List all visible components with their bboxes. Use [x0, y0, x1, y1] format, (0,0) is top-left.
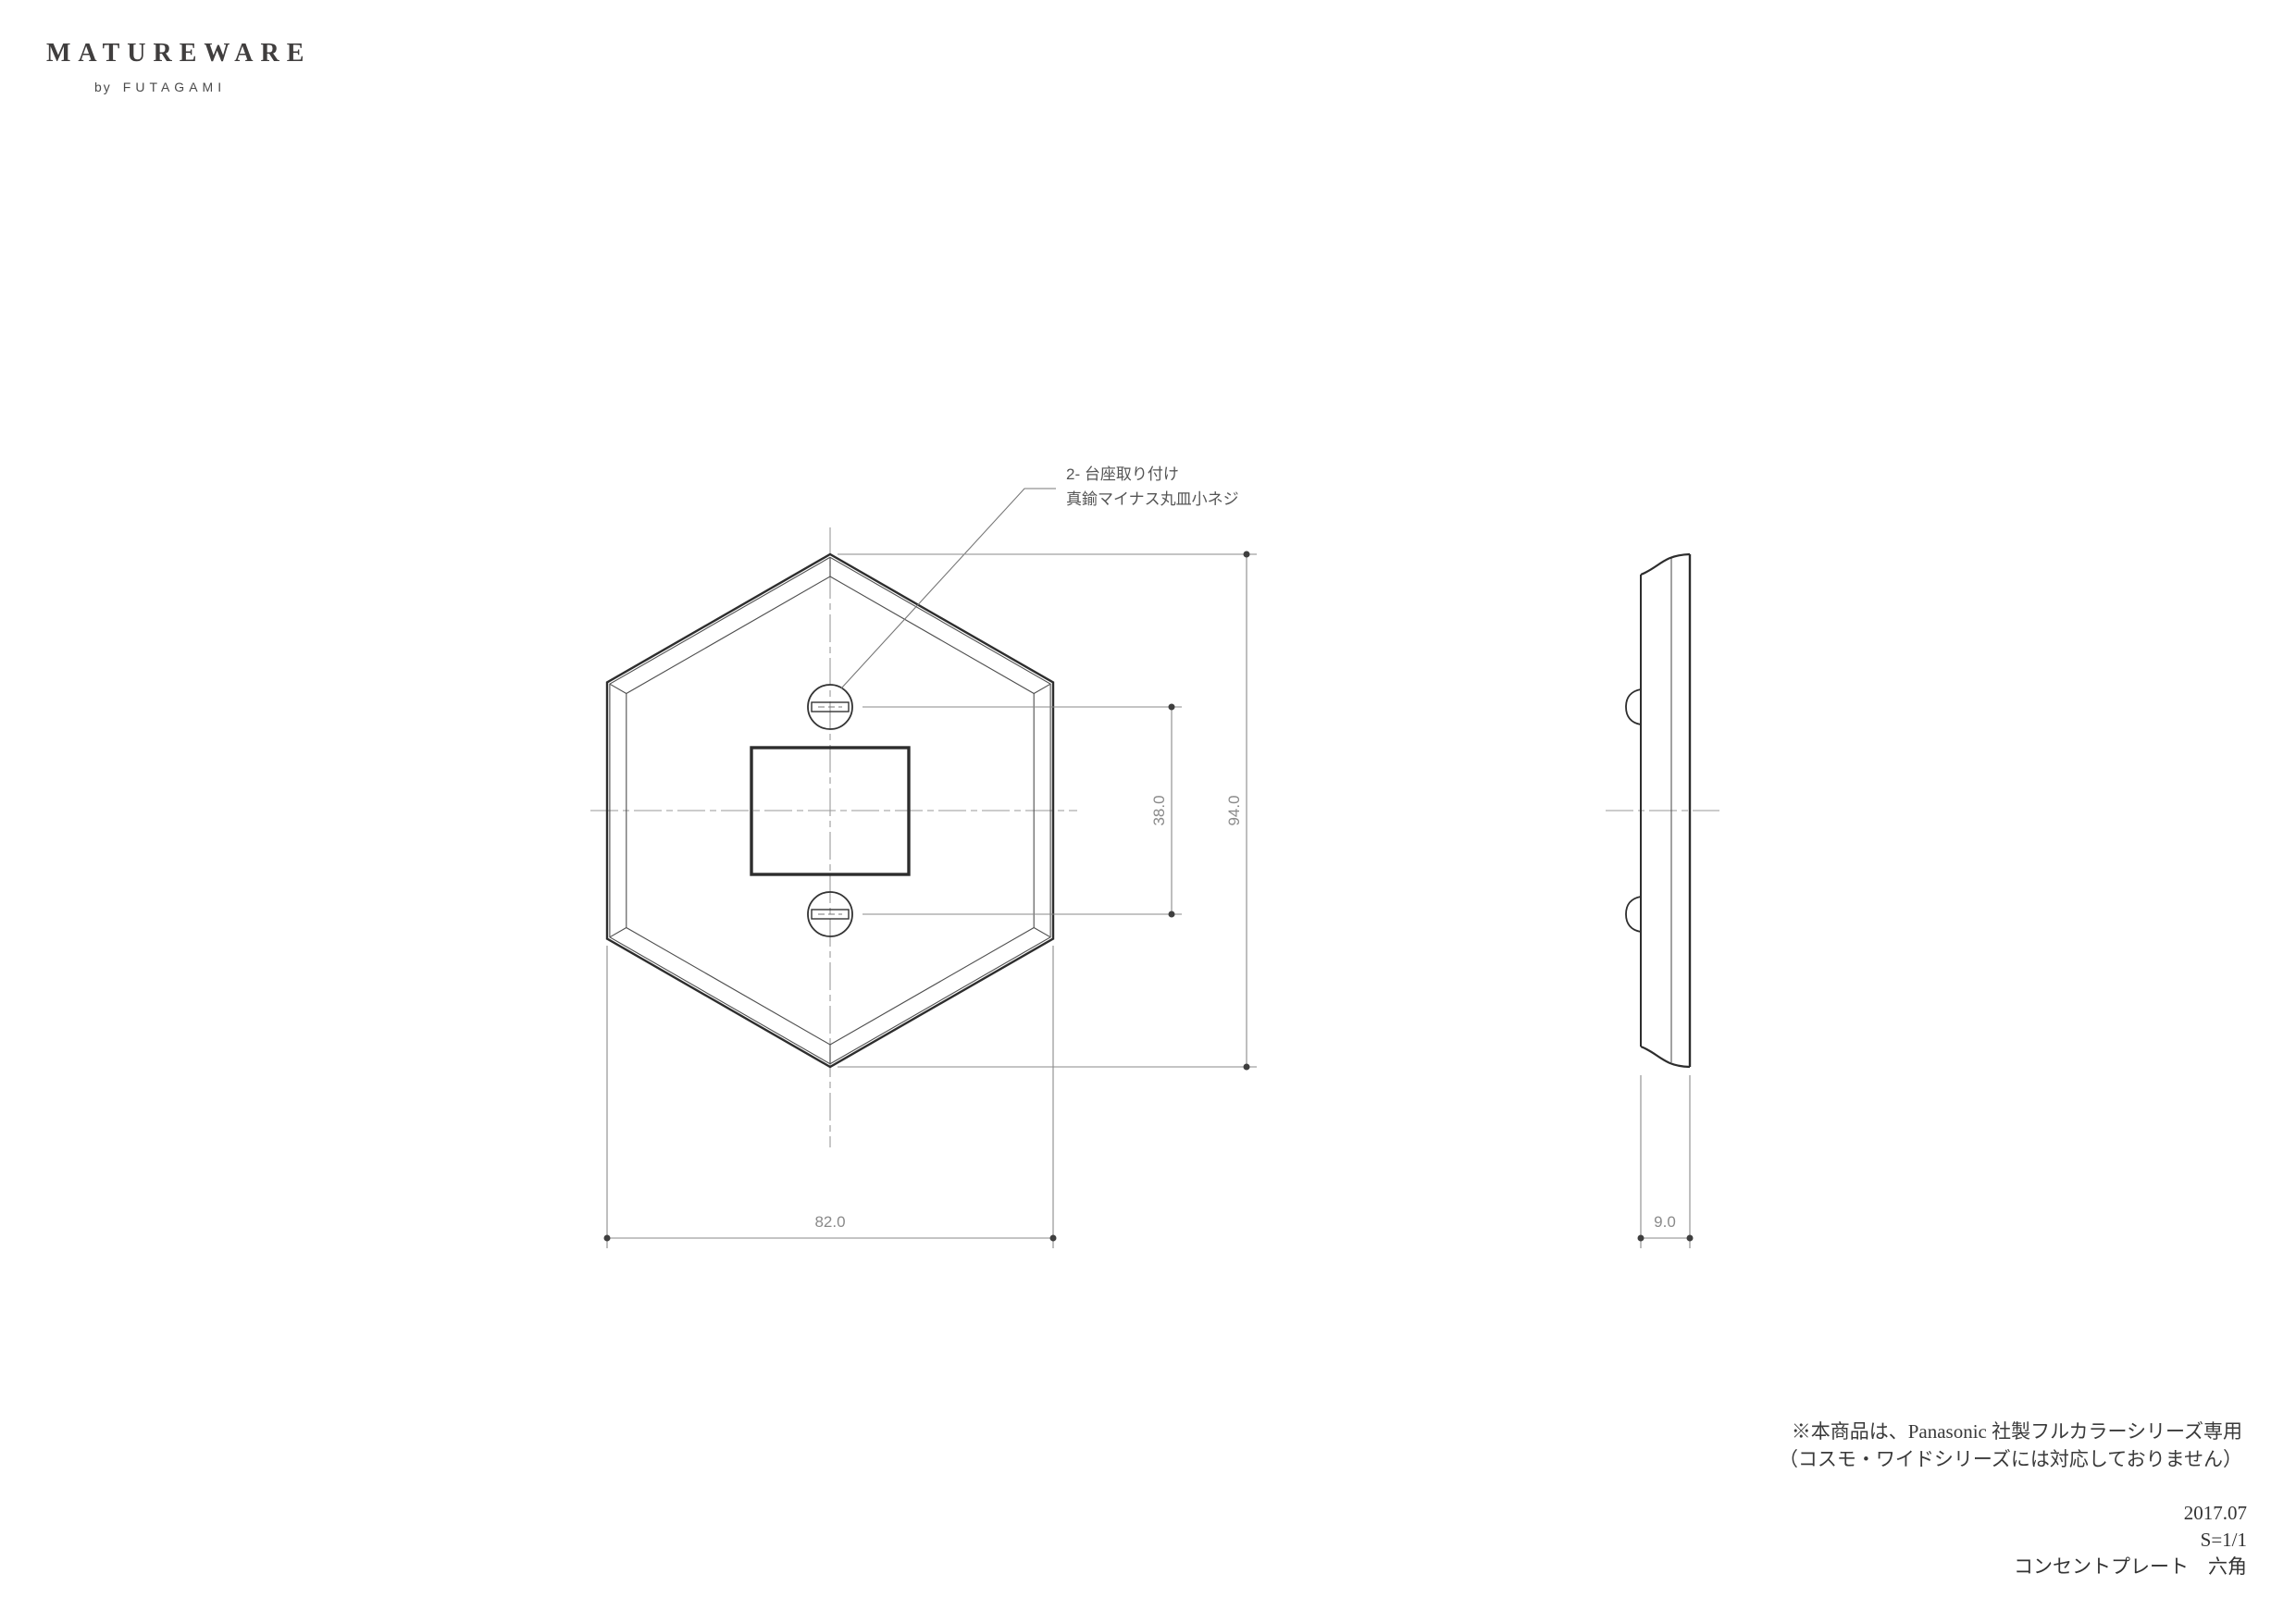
dim-label-thickness: 9.0 — [1654, 1213, 1676, 1232]
front-view-dimensions — [604, 551, 1258, 1249]
front-view — [590, 489, 1077, 1147]
screw-annotation-line1: 2- 台座取り付け — [1066, 462, 1239, 487]
drawing-scale: S=1/1 — [2014, 1527, 2247, 1554]
screw-head-profile-bottom — [1626, 897, 1641, 932]
dim-label-overall-width: 82.0 — [814, 1213, 845, 1232]
brand-by: by — [94, 80, 112, 94]
brand-subline: byFUTAGAMI — [94, 80, 311, 96]
drawing-date: 2017.07 — [2014, 1500, 2247, 1527]
brand-name: MATUREWARE — [46, 39, 311, 68]
compatibility-note: ※本商品は、Panasonic 社製フルカラーシリーズ専用 （コスモ・ワイドシリ… — [1779, 1418, 2242, 1473]
dim-label-overall-height: 94.0 — [1225, 795, 1244, 825]
compatibility-note-line1: ※本商品は、Panasonic 社製フルカラーシリーズ専用 — [1779, 1418, 2242, 1445]
screw-annotation: 2- 台座取り付け 真鍮マイナス丸皿小ネジ — [1066, 462, 1239, 512]
technical-drawing — [0, 0, 2296, 1623]
product-name: コンセントプレート 六角 — [2014, 1554, 2247, 1580]
screw-head-profile-top — [1626, 689, 1641, 725]
compatibility-note-line2: （コスモ・ワイドシリーズには対応しておりません） — [1779, 1445, 2242, 1473]
annotation-leader-line — [841, 489, 1056, 688]
screw-annotation-line2: 真鍮マイナス丸皿小ネジ — [1066, 487, 1239, 512]
maker-name: FUTAGAMI — [123, 80, 226, 94]
brand-logo: MATUREWARE byFUTAGAMI — [46, 39, 311, 96]
dim-label-screw-spacing: 38.0 — [1150, 795, 1169, 825]
side-view — [1606, 554, 1719, 1067]
title-block: 2017.07 S=1/1 コンセントプレート 六角 — [2014, 1500, 2247, 1580]
